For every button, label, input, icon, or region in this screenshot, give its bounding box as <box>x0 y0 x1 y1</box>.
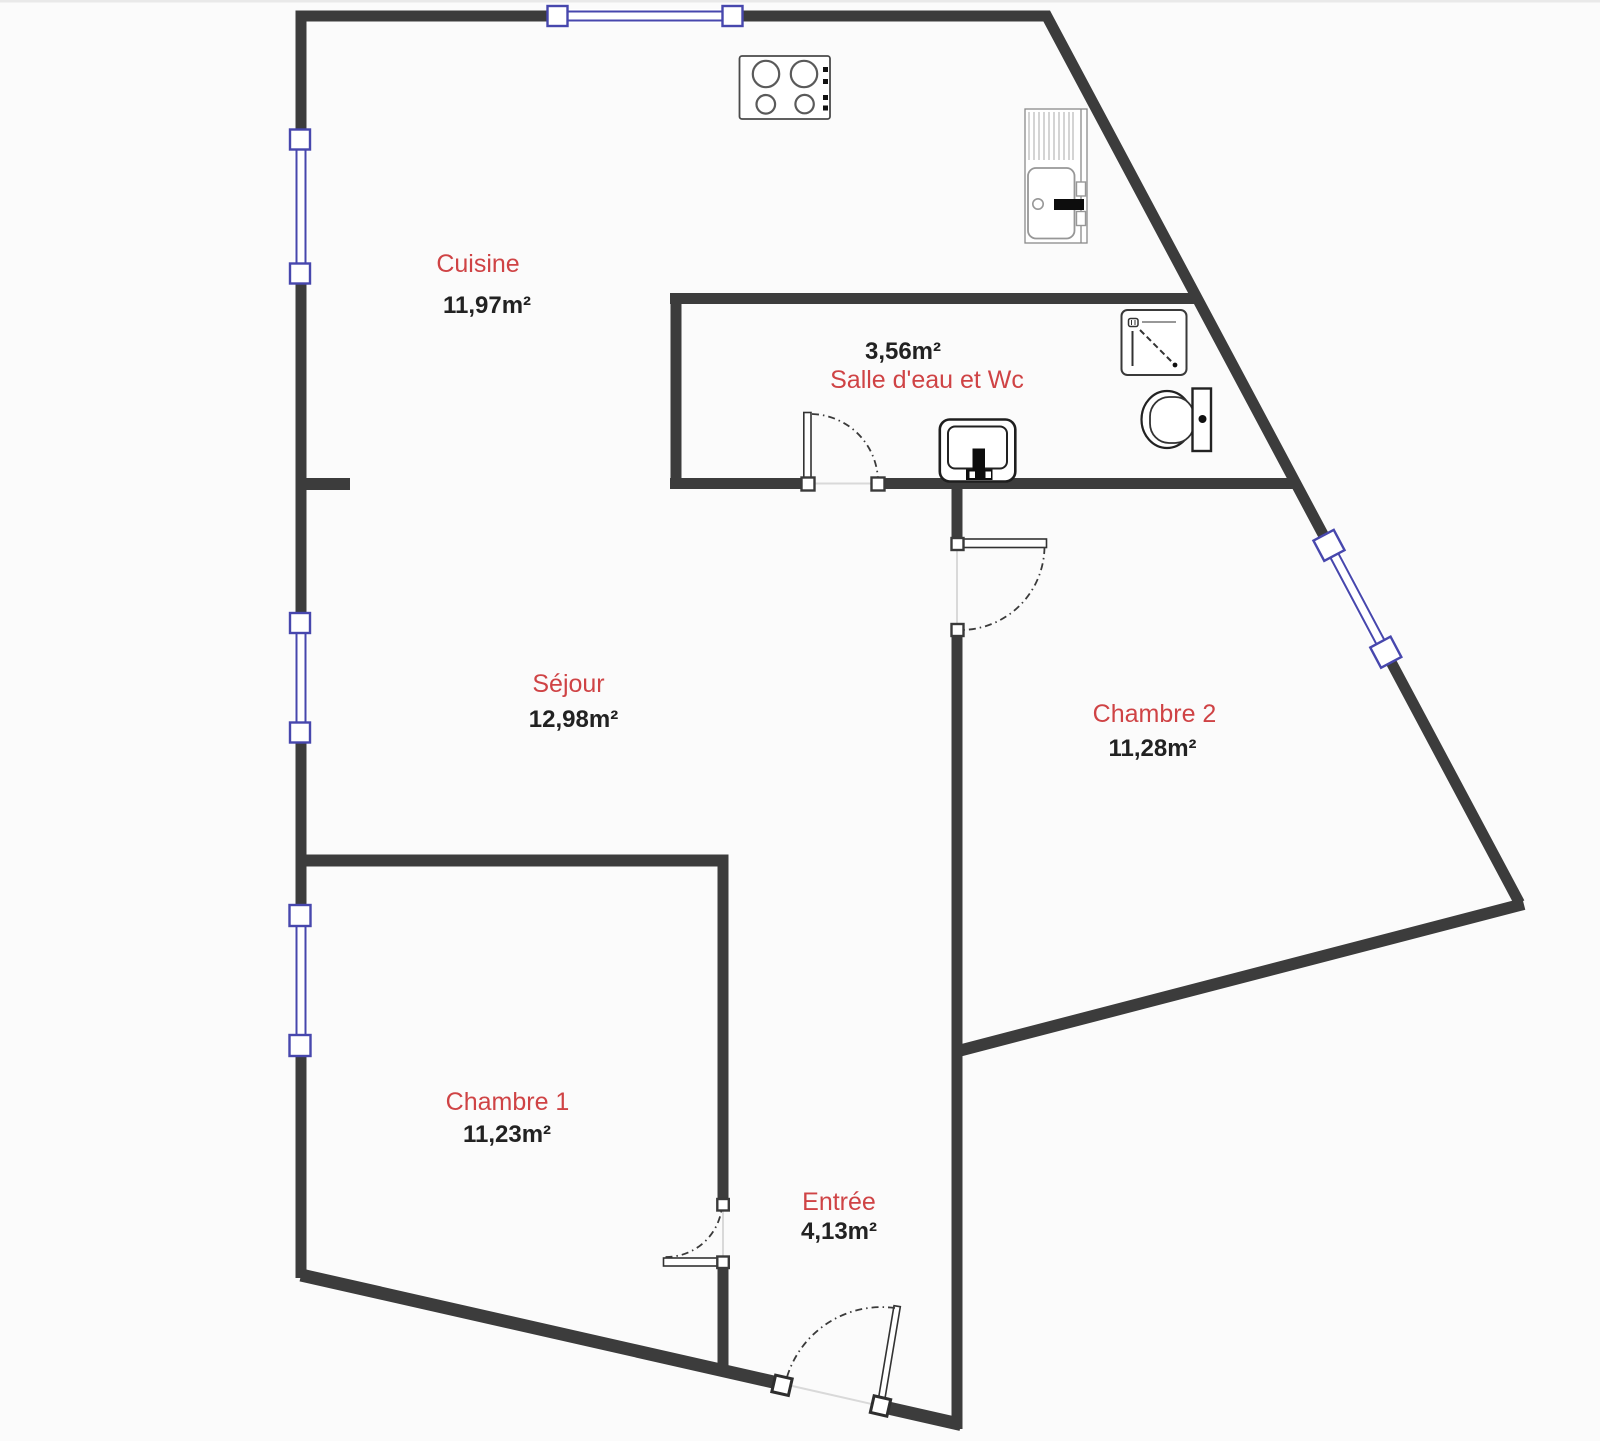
svg-text:Séjour: Séjour <box>532 670 604 698</box>
svg-text:Chambre 2: Chambre 2 <box>1093 700 1217 728</box>
svg-text:4,13m²: 4,13m² <box>801 1218 877 1245</box>
svg-text:12,98m²: 12,98m² <box>529 706 618 733</box>
svg-text:3,56m²: 3,56m² <box>865 338 941 365</box>
svg-text:Entrée: Entrée <box>802 1188 876 1216</box>
svg-text:11,23m²: 11,23m² <box>463 1121 551 1148</box>
svg-text:Chambre 1: Chambre 1 <box>446 1088 570 1116</box>
svg-text:Salle d'eau et Wc: Salle d'eau et Wc <box>830 366 1024 394</box>
svg-text:Cuisine: Cuisine <box>436 250 519 278</box>
svg-text:11,97m²: 11,97m² <box>443 292 531 319</box>
svg-text:11,28m²: 11,28m² <box>1108 735 1196 762</box>
